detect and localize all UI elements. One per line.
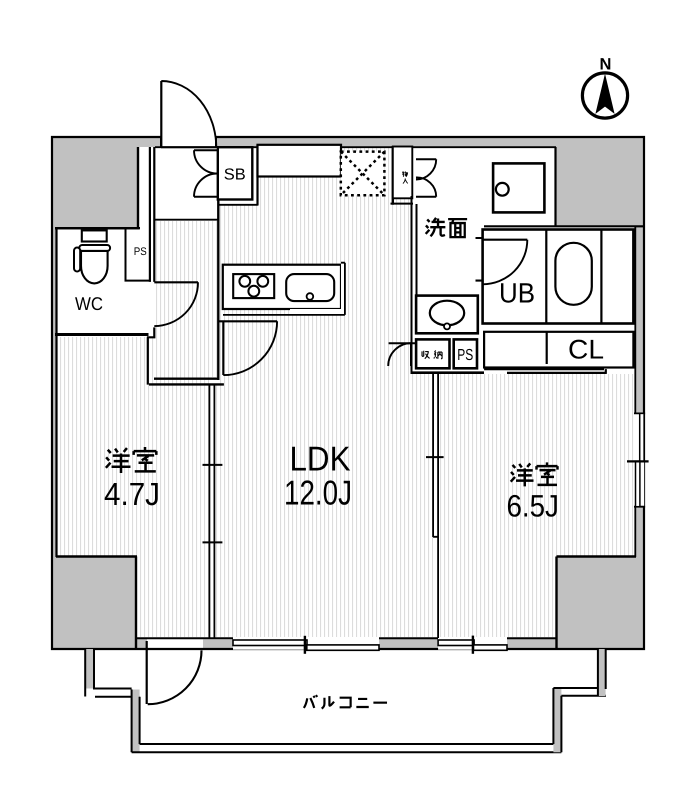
svg-text:SB: SB (224, 166, 246, 183)
svg-text:N: N (600, 55, 612, 73)
svg-text:PS: PS (134, 246, 147, 258)
svg-text:WC: WC (75, 293, 103, 314)
svg-text:UB: UB (499, 278, 535, 309)
svg-text:12.0J: 12.0J (284, 475, 352, 513)
svg-text:6.5J: 6.5J (506, 488, 559, 523)
svg-text:4.7J: 4.7J (104, 476, 160, 512)
svg-text:PS: PS (457, 347, 473, 364)
svg-text:LDK: LDK (290, 441, 351, 479)
svg-text:CL: CL (568, 335, 604, 365)
